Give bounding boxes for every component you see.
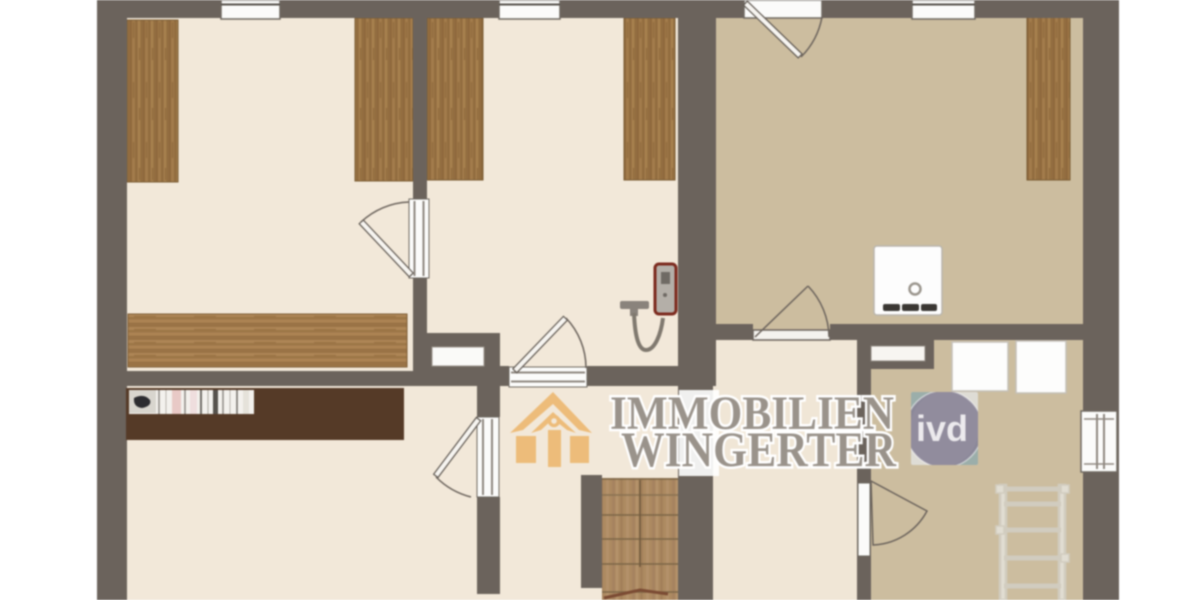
svg-text:ivd: ivd: [916, 408, 968, 449]
svg-text:WINGERTER: WINGERTER: [621, 421, 897, 477]
